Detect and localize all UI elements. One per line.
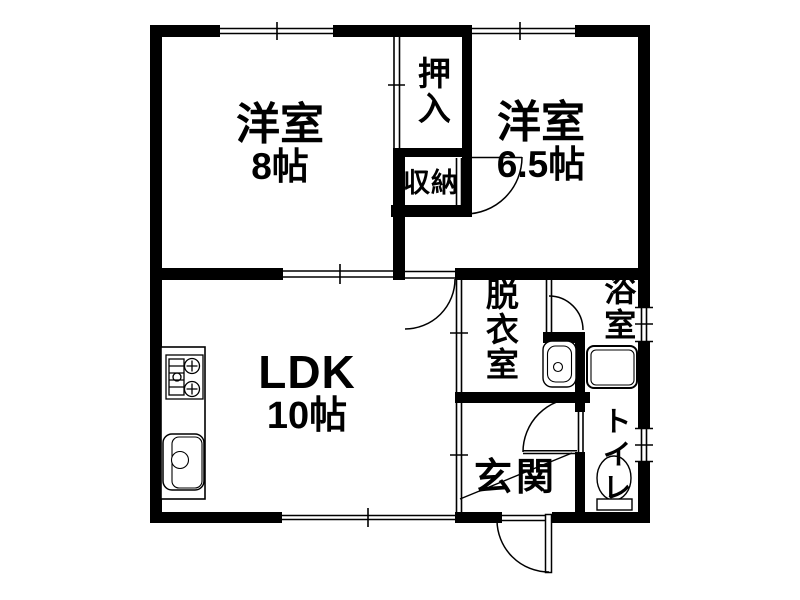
room-label-ldk: LDK 10帖 <box>207 349 407 436</box>
floor-plan: 洋室 8帖 洋室 6.5帖 LDK 10帖 押入 収納 脱衣室 浴室 玄関 トイ… <box>0 0 800 600</box>
bathtub-icon <box>587 346 637 388</box>
western8-size: 8帖 <box>180 148 380 186</box>
room-label-yokushitsu: 浴室 <box>601 273 634 343</box>
room-label-genkan: 玄関 <box>464 459 568 499</box>
ldk-name: LDK <box>207 349 407 397</box>
western65-size: 6.5帖 <box>441 146 641 184</box>
washbasin-icon <box>543 341 576 387</box>
room-label-oshiire: 押入 <box>414 56 448 126</box>
room-label-toilet: トイレ <box>599 406 629 505</box>
room-label-western8: 洋室 8帖 <box>180 102 380 186</box>
kitchen-sink-icon <box>163 434 204 490</box>
ldk-size: 10帖 <box>207 397 407 437</box>
western65-name: 洋室 <box>441 100 641 146</box>
floor-plan-drawing <box>0 0 800 600</box>
western8-name: 洋室 <box>180 102 380 148</box>
room-label-western65: 洋室 6.5帖 <box>441 100 641 184</box>
room-label-shuno: 収納 <box>400 169 462 197</box>
room-label-datsuishitsu: 脱衣室 <box>482 277 516 382</box>
